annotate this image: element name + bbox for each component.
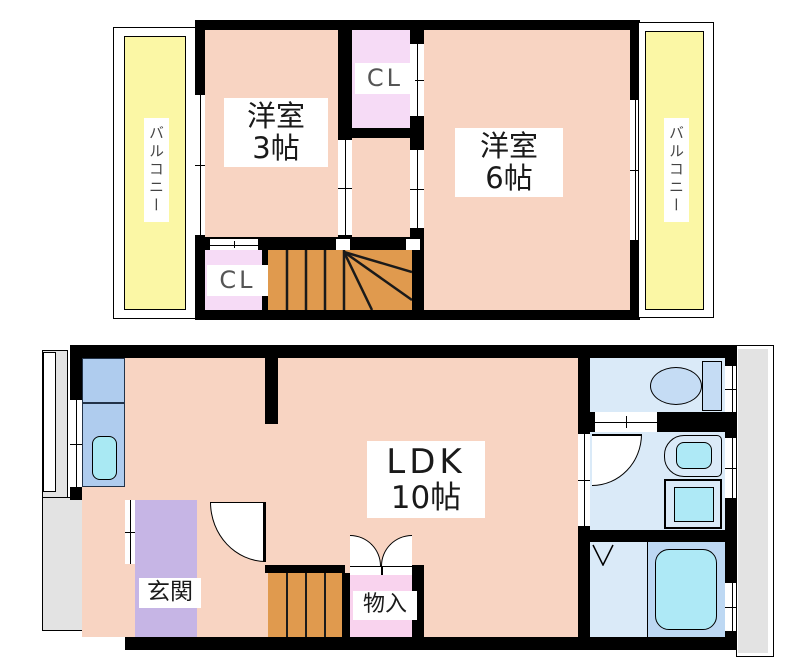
wall [590,530,725,542]
window [195,95,205,235]
stair-step [324,573,326,637]
ldk-label: LDK 10帖 [367,441,485,518]
wall [265,565,345,573]
balcony-left-label: バルコニー [144,118,169,222]
sliding-door [410,150,424,228]
closet-door [210,239,258,250]
window [70,400,82,487]
washbasin-bowl-icon [676,442,712,469]
kitchen-sink-icon [92,436,117,480]
washing-machine-icon [664,479,722,529]
room-label: 洋室 3帖 [224,98,328,167]
washbasin-icon [664,435,722,477]
stair-step [286,573,288,637]
closet-label: CL [355,63,415,94]
entrance-hall [135,500,197,637]
door-tick [381,567,383,575]
wall-opening [406,239,420,250]
doorway [578,434,590,526]
wall [125,637,738,650]
folding-door-icon [592,544,614,566]
bathtub-icon [655,549,717,630]
stair-step [305,573,307,637]
toilet-tank-icon [702,361,722,411]
balcony-right-label: バルコニー [664,118,689,222]
staircase-upper [268,250,412,310]
exterior-side-right [738,349,768,653]
kitchen-stove [82,358,125,403]
wall [70,345,738,358]
partition-wall [265,358,278,424]
storage-label: 物入 [353,591,417,620]
stairs-steps-icon [268,250,412,310]
wall-opening [336,239,350,250]
toilet-bowl-icon [650,367,702,405]
floor-plan: バルコニー 洋室 3帖 洋室 6帖 CL CL バルコニー [0,0,800,671]
wall [342,573,350,637]
storage-door-sill [350,566,412,575]
entrance-label: 玄関 [139,578,201,608]
room-label: 洋室 6帖 [455,128,563,197]
exterior-post [43,352,56,492]
sliding-door [595,412,657,432]
washing-machine-tub-icon [674,487,714,522]
staircase-lower [268,573,342,637]
closet-label: CL [207,265,268,296]
sliding-door [338,140,352,235]
entrance-door [125,500,135,564]
alcove [352,138,410,237]
